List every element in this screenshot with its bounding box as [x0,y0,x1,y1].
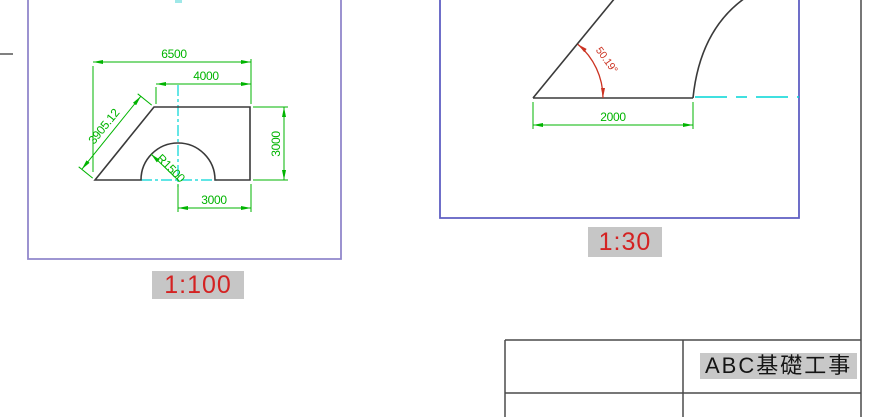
dim-top-width[interactable]: 4000 [156,69,251,104]
viewport-left-border[interactable] [28,0,341,259]
dim-angle[interactable]: 50.19° [578,44,620,98]
dim-diagonal[interactable]: 3905.12 [79,94,152,178]
dim-bottom-width[interactable]: 3000 [178,184,251,212]
cad-paper-space: 6500 4000 3000 3000 R1500 [0,0,874,417]
right-shape-outline[interactable] [533,0,745,98]
dim-top-width-text[interactable]: 4000 [193,69,219,83]
dim-right-height-text[interactable]: 3000 [269,131,283,157]
dim-right-height[interactable]: 3000 [253,107,288,180]
viewport-right-border[interactable] [440,0,799,218]
dim-total-width-text[interactable]: 6500 [161,47,187,61]
scale-label-right-view[interactable]: 1:30 [588,227,662,257]
dim-right-bottom-width-text[interactable]: 2000 [600,110,626,124]
dim-bottom-width-text[interactable]: 3000 [201,193,227,207]
scale-label-left-view[interactable]: 1:100 [152,271,244,299]
title-block-project-title[interactable]: ABC基礎工事 [700,353,857,379]
dim-right-bottom-width[interactable]: 2000 [533,102,693,129]
